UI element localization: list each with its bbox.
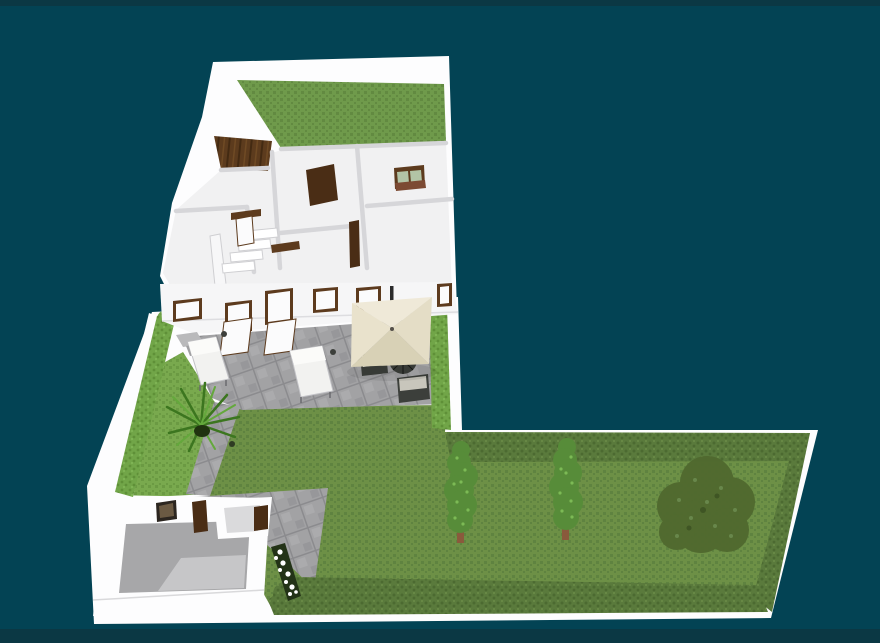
3d-render[interactable] bbox=[0, 0, 880, 643]
open-door-icon bbox=[306, 164, 338, 206]
door-panel bbox=[236, 216, 254, 246]
wood-deck bbox=[214, 136, 272, 171]
bottom-frame-strip bbox=[0, 629, 880, 643]
bedroom-window bbox=[394, 165, 426, 191]
open-door-icon bbox=[349, 220, 360, 268]
annex-door bbox=[254, 505, 268, 531]
hedge-top bbox=[445, 432, 810, 462]
3d-home-plan-viewport[interactable] bbox=[0, 0, 880, 643]
top-frame-strip bbox=[0, 0, 880, 6]
garage-door bbox=[192, 500, 208, 533]
garage bbox=[93, 495, 272, 616]
